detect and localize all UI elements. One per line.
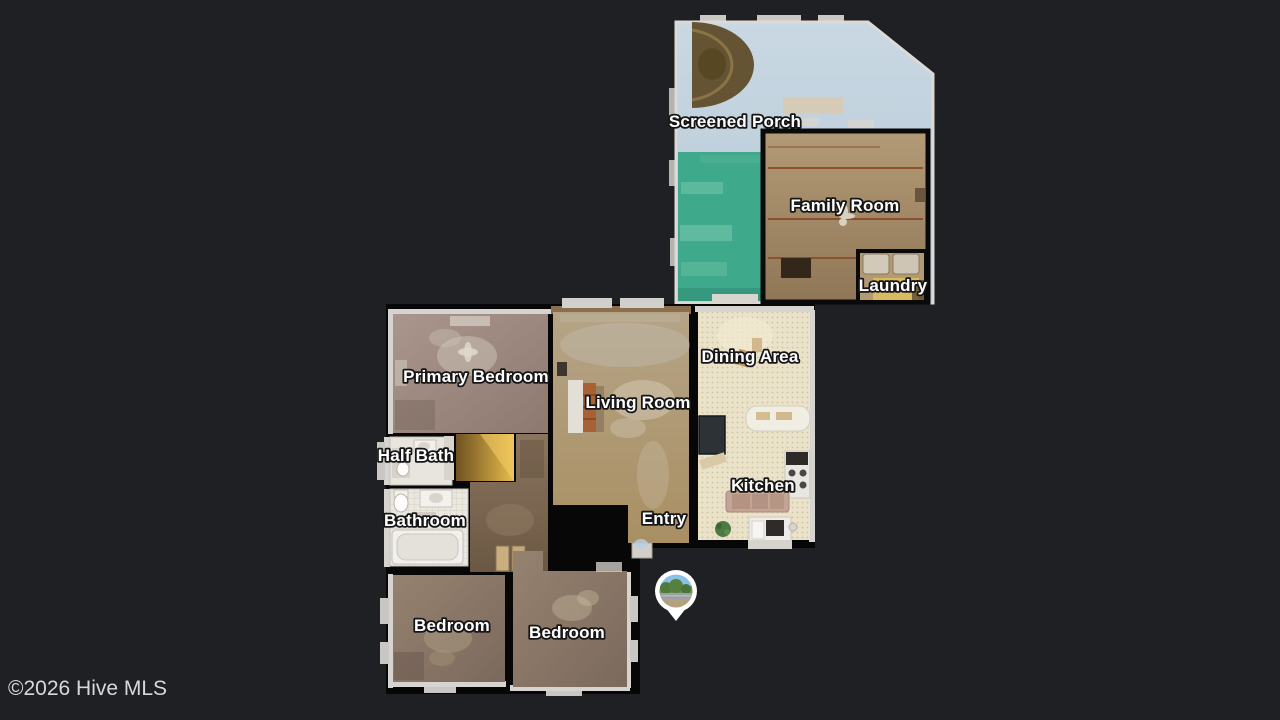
carpet-light-patch — [577, 590, 599, 606]
living-room-furniture — [557, 362, 567, 376]
bathtub-basin — [397, 534, 458, 560]
exterior-wall — [388, 309, 551, 314]
window-tab — [630, 596, 638, 622]
stove-burner — [800, 470, 807, 477]
room-label-bedroom-right: Bedroom — [529, 623, 605, 642]
potted-plant — [724, 529, 730, 535]
window-sill — [562, 298, 612, 308]
carpet-light-patch — [429, 650, 455, 666]
rug-pattern — [752, 494, 768, 509]
panorama-pin-icon[interactable] — [655, 570, 697, 621]
family-room-hearth — [781, 258, 811, 278]
sink-bay-wall — [748, 540, 792, 549]
bedroom-door — [496, 546, 509, 571]
porch-wall-detail — [848, 120, 874, 128]
kitchen-fixture — [789, 523, 797, 531]
stove-backsplash — [786, 452, 808, 465]
room-label-family-room: Family Room — [791, 196, 900, 215]
rug-pattern — [770, 494, 784, 509]
room-label-kitchen: Kitchen — [731, 476, 795, 495]
exterior-wall — [388, 574, 393, 688]
porch-step — [712, 294, 758, 303]
rug-pattern — [732, 494, 750, 509]
island-decor — [776, 412, 792, 420]
ceiling-fan-hub — [839, 218, 847, 226]
cabinet-door — [752, 521, 764, 539]
potted-plant — [715, 521, 731, 537]
closet-shelf — [596, 562, 622, 572]
bed-linens — [450, 316, 490, 326]
carpet-light-streak — [700, 155, 760, 163]
room-label-half-bath: Half Bath — [378, 446, 454, 465]
room-label-entry: Entry — [642, 509, 687, 528]
stove-burner — [800, 482, 807, 489]
floorplan-stage: Screened Porch Family Room Laundry Prima… — [0, 0, 1280, 720]
room-label-bathroom: Bathroom — [384, 511, 466, 530]
hall-shade — [520, 440, 544, 478]
entry-door-glass — [634, 539, 648, 549]
room-label-living-room: Living Room — [585, 393, 690, 412]
side-table — [699, 416, 725, 454]
floorplan-canvas[interactable]: Screened Porch Family Room Laundry Prima… — [0, 0, 1280, 720]
potted-plant — [716, 523, 722, 529]
window-sill — [620, 298, 664, 308]
carpet-light-streak — [681, 262, 727, 276]
window-light — [560, 314, 680, 322]
window-tab — [380, 642, 389, 664]
carpet-light-patch — [429, 329, 461, 347]
wall-fixture — [915, 188, 925, 202]
window-tab — [630, 640, 638, 662]
ceiling-fan — [464, 342, 472, 362]
building-porch-wing — [669, 15, 933, 303]
carpet-light-streak — [680, 225, 732, 241]
window-tab — [380, 598, 389, 624]
sink-basin — [429, 493, 443, 503]
window-tab — [424, 687, 456, 693]
toilet — [394, 494, 408, 512]
room-label-dining-area: Dining Area — [702, 347, 799, 366]
carpet-light-streak — [681, 182, 723, 194]
kitchen-sink — [766, 520, 784, 536]
carpet-shade — [395, 400, 435, 430]
fireplace-hearth — [568, 380, 583, 433]
window-tab — [546, 691, 582, 696]
hall-light-patch — [486, 504, 534, 536]
washer — [863, 254, 889, 274]
exterior-wall — [388, 309, 393, 434]
watermark: ©2026 Hive MLS — [8, 677, 167, 700]
carpet-sheen — [560, 323, 690, 367]
entry-light-streak — [637, 441, 669, 509]
room-label-laundry: Laundry — [859, 276, 928, 295]
dryer — [893, 254, 919, 274]
room-label-primary-bedroom: Primary Bedroom — [403, 367, 549, 386]
exterior-wall — [695, 306, 814, 312]
carpet-shade — [394, 652, 424, 680]
carpet-light-patch — [610, 418, 646, 438]
porch-rug-center — [698, 48, 726, 80]
island-decor — [756, 412, 770, 420]
room-label-screened-porch: Screened Porch — [669, 112, 801, 131]
room-label-bedroom-left: Bedroom — [414, 616, 490, 635]
